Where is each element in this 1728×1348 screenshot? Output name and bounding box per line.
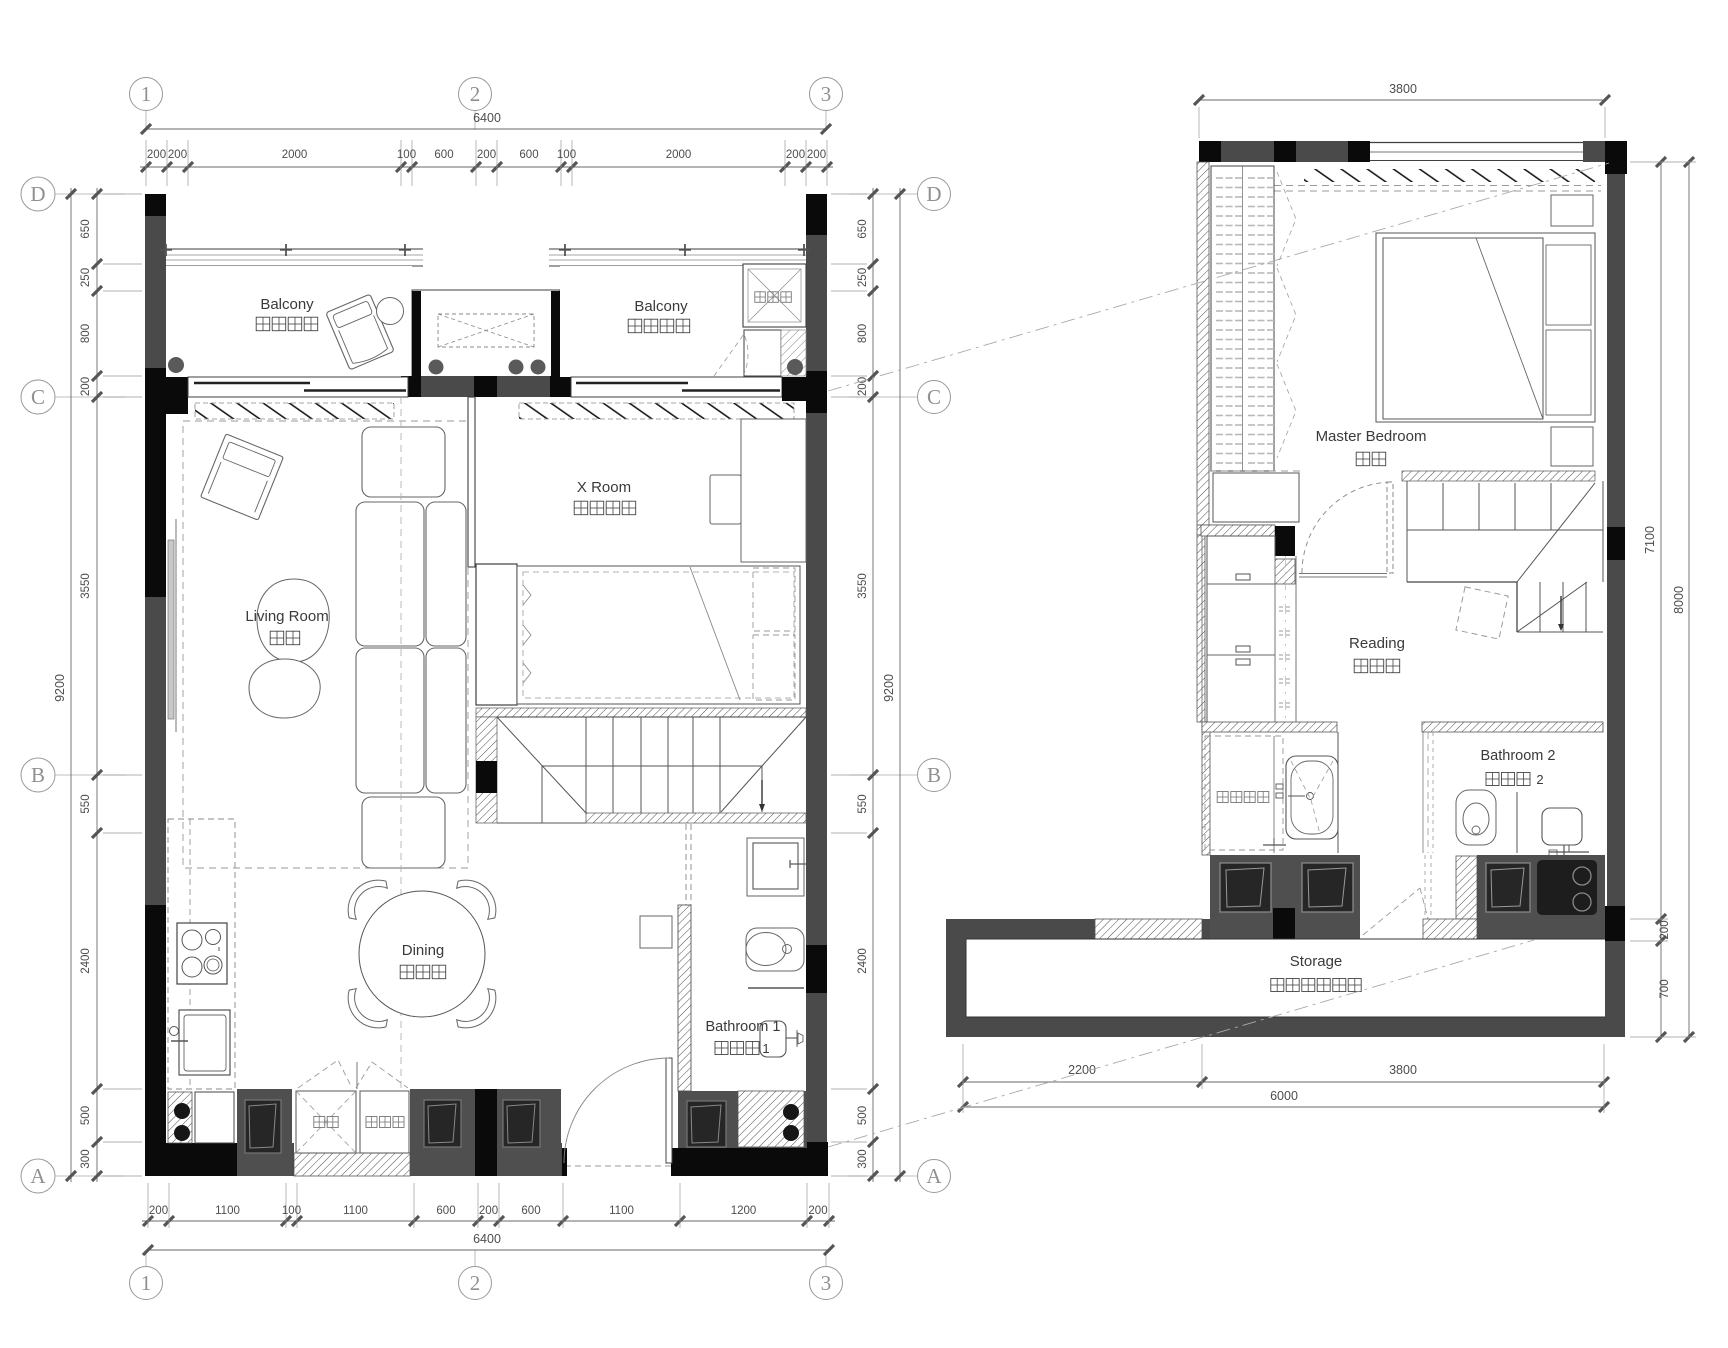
svg-text:600: 600 [434, 149, 453, 161]
svg-text:200: 200 [808, 1205, 827, 1217]
svg-text:100: 100 [282, 1205, 301, 1217]
svg-text:7100: 7100 [1643, 526, 1657, 554]
svg-text:250: 250 [857, 268, 869, 287]
svg-text:2400: 2400 [80, 948, 92, 974]
svg-text:500: 500 [80, 1106, 92, 1125]
svg-text:Storage: Storage [1290, 953, 1343, 970]
svg-text:600: 600 [436, 1205, 455, 1217]
svg-text:700: 700 [1659, 979, 1671, 998]
svg-text:100: 100 [397, 149, 416, 161]
svg-text:X Room: X Room [577, 479, 631, 496]
svg-text:1: 1 [762, 1041, 769, 1056]
svg-text:3: 3 [821, 82, 832, 106]
svg-text:1: 1 [141, 1271, 152, 1295]
svg-text:Dining: Dining [402, 942, 445, 959]
svg-text:6400: 6400 [473, 111, 501, 125]
svg-text:3800: 3800 [1389, 82, 1417, 96]
svg-text:Living Room: Living Room [245, 608, 328, 625]
svg-text:3550: 3550 [80, 573, 92, 599]
svg-text:3: 3 [821, 1271, 832, 1295]
svg-text:C: C [927, 385, 941, 409]
svg-text:650: 650 [80, 219, 92, 238]
svg-text:Bathroom 1: Bathroom 1 [706, 1019, 781, 1035]
svg-text:2000: 2000 [666, 149, 692, 161]
svg-text:D: D [30, 182, 45, 206]
svg-text:200: 200 [477, 149, 496, 161]
svg-text:1100: 1100 [215, 1205, 240, 1217]
svg-text:100: 100 [557, 149, 576, 161]
svg-text:Balcony: Balcony [260, 296, 314, 313]
svg-text:B: B [927, 763, 941, 787]
svg-text:2: 2 [470, 82, 481, 106]
svg-text:Bathroom 2: Bathroom 2 [1481, 748, 1556, 764]
svg-text:500: 500 [857, 1106, 869, 1125]
svg-text:6000: 6000 [1270, 1089, 1298, 1103]
svg-text:550: 550 [857, 794, 869, 813]
svg-text:2400: 2400 [857, 948, 869, 974]
svg-text:200: 200 [168, 149, 187, 161]
svg-text:200: 200 [807, 149, 826, 161]
svg-text:1100: 1100 [343, 1205, 368, 1217]
svg-text:1200: 1200 [731, 1205, 757, 1217]
svg-text:Balcony: Balcony [634, 298, 688, 315]
svg-text:6400: 6400 [473, 1232, 501, 1246]
svg-text:300: 300 [857, 1149, 869, 1168]
svg-text:2: 2 [470, 1271, 481, 1295]
svg-text:200: 200 [80, 377, 92, 396]
svg-text:200: 200 [147, 149, 166, 161]
svg-text:C: C [31, 385, 45, 409]
svg-text:D: D [926, 182, 941, 206]
svg-text:3550: 3550 [857, 573, 869, 599]
svg-text:200: 200 [786, 149, 805, 161]
svg-text:1: 1 [141, 82, 152, 106]
svg-text:9200: 9200 [53, 674, 67, 702]
svg-text:A: A [30, 1164, 46, 1188]
svg-text:8000: 8000 [1672, 586, 1686, 614]
svg-text:1100: 1100 [609, 1205, 634, 1217]
svg-text:200: 200 [1659, 920, 1671, 939]
svg-text:3800: 3800 [1389, 1063, 1417, 1077]
svg-text:B: B [31, 763, 45, 787]
svg-text:2: 2 [1536, 772, 1543, 787]
svg-text:600: 600 [521, 1205, 540, 1217]
svg-text:650: 650 [857, 219, 869, 238]
svg-text:250: 250 [80, 268, 92, 287]
svg-text:800: 800 [80, 324, 92, 343]
svg-text:550: 550 [80, 794, 92, 813]
svg-text:200: 200 [479, 1205, 498, 1217]
svg-text:A: A [926, 1164, 942, 1188]
svg-text:600: 600 [519, 149, 538, 161]
svg-text:800: 800 [857, 324, 869, 343]
svg-text:9200: 9200 [882, 674, 896, 702]
svg-text:Reading: Reading [1349, 635, 1405, 652]
svg-text:200: 200 [149, 1205, 168, 1217]
svg-text:Master Bedroom: Master Bedroom [1316, 428, 1427, 445]
svg-text:300: 300 [80, 1149, 92, 1168]
svg-text:2000: 2000 [282, 149, 308, 161]
